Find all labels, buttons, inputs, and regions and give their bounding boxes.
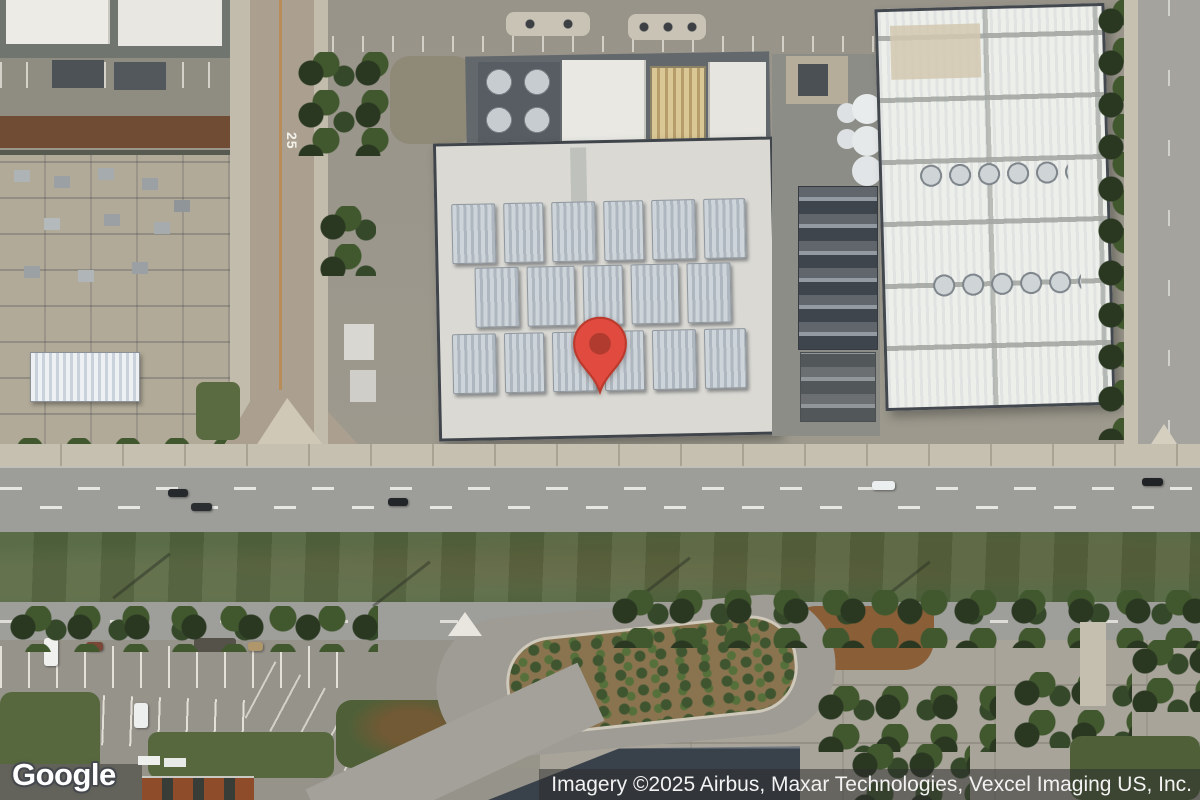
rooftop-hvac-unit bbox=[651, 199, 696, 260]
grass-island-parking-b bbox=[148, 732, 334, 778]
tree-row-southwest bbox=[8, 606, 378, 652]
car-dark bbox=[1142, 478, 1163, 486]
rooftop-hvac-unit bbox=[703, 198, 746, 259]
car-dark bbox=[191, 503, 212, 511]
rooftop-fan-row-upper bbox=[918, 159, 1069, 189]
vertical-street-east bbox=[1138, 0, 1200, 456]
rooftop-hvac-unit bbox=[630, 263, 679, 324]
location-marker-pin-icon[interactable] bbox=[571, 314, 629, 399]
satellite-map-canvas[interactable]: 25 bbox=[0, 0, 1200, 800]
lane-dashes-eastbound bbox=[40, 506, 1200, 509]
parking-ticks-top bbox=[332, 0, 892, 54]
mulch-planting-strip bbox=[0, 116, 240, 148]
utility-roof-white-b bbox=[708, 62, 766, 144]
equipment-rack-rows-south bbox=[800, 352, 876, 422]
rooftop-hvac-unit bbox=[603, 200, 644, 261]
plaza-tree-cluster-c bbox=[1130, 640, 1200, 712]
tree-cluster-road-mid bbox=[318, 206, 376, 276]
grass-patch-junction bbox=[196, 382, 240, 440]
car-white bbox=[872, 481, 895, 490]
google-logo[interactable]: Google bbox=[12, 757, 116, 793]
rooftop-hvac-unit bbox=[686, 262, 731, 323]
rooftop-fan-row-lower bbox=[931, 269, 1082, 299]
imagery-attribution: Imagery ©2025 Airbus, Maxar Technologies… bbox=[539, 769, 1200, 800]
tree-line-secondary-road bbox=[610, 590, 1200, 648]
utility-roof-louvers bbox=[650, 66, 706, 146]
rooftop-hvac-unit bbox=[704, 328, 747, 389]
main-boulevard bbox=[0, 466, 1200, 532]
rooftop-hvac-unit bbox=[475, 267, 520, 328]
tree-cluster-road-east bbox=[296, 52, 392, 156]
car-dark bbox=[388, 498, 408, 506]
plaza-tree-cluster-a bbox=[816, 686, 996, 752]
storage-container bbox=[344, 324, 374, 360]
rooftop-hvac-unit bbox=[652, 329, 697, 390]
substation-equipment bbox=[14, 170, 30, 182]
carport-canopy bbox=[52, 60, 104, 88]
rooftop-hvac-unit bbox=[503, 202, 544, 263]
rooftop-hvac-unit bbox=[551, 201, 596, 262]
building-roof-top-left-b bbox=[118, 0, 222, 46]
building-roof-top-left-a bbox=[6, 0, 110, 44]
rooftop-hvac-unit bbox=[527, 266, 576, 327]
generator-pad-a bbox=[506, 12, 590, 36]
equipment-rack-rows bbox=[798, 186, 878, 350]
car-dark bbox=[168, 489, 188, 497]
car-white-parked bbox=[134, 703, 148, 728]
alley-equipment-pad bbox=[786, 56, 848, 104]
cooling-tower-units bbox=[142, 776, 254, 800]
roof-spine bbox=[570, 147, 587, 203]
plaza-walkway bbox=[1080, 622, 1106, 706]
rooftop-hvac-unit bbox=[452, 333, 497, 394]
utility-roof-white bbox=[562, 60, 646, 146]
substation-building-roof bbox=[30, 352, 140, 402]
rooftop-hvac-unit bbox=[504, 332, 545, 393]
street-center-line bbox=[279, 0, 282, 390]
landscaped-garden bbox=[390, 56, 474, 144]
rooftop-fan-bank bbox=[478, 62, 560, 142]
sidewalk-main-road-north bbox=[0, 444, 1200, 466]
sidewalk-east-road bbox=[1124, 0, 1138, 452]
generator-pad-b bbox=[628, 14, 706, 40]
parking-strip-top-left bbox=[0, 58, 240, 116]
data-center-building-right bbox=[874, 3, 1115, 411]
hvac-row-upper bbox=[451, 198, 746, 262]
rooftop-hvac-unit bbox=[451, 203, 496, 264]
white-trailers bbox=[138, 756, 160, 765]
